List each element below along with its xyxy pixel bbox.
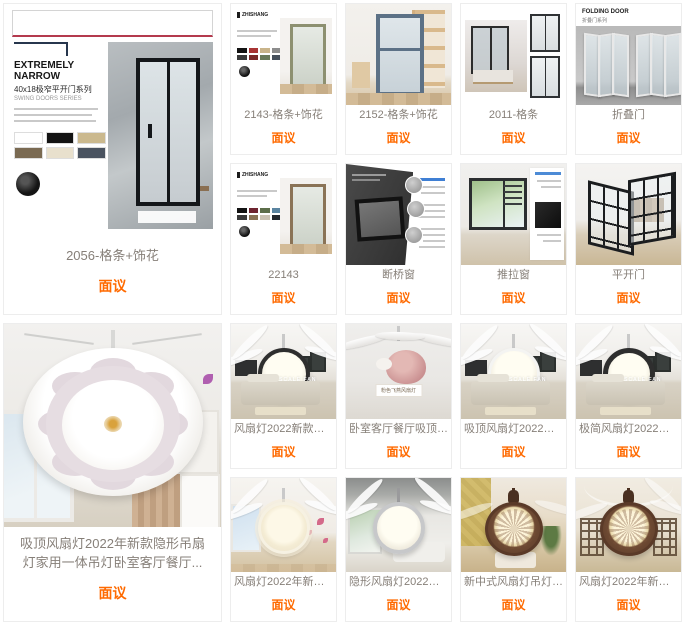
brand-logo: ZHISHANG — [237, 12, 268, 18]
product-image[interactable]: BEST UPSCALE FAN — [576, 324, 681, 419]
folding-panel — [664, 33, 681, 97]
product-card[interactable]: 新中式风扇灯吊灯客厅灯... 面议 — [460, 477, 567, 623]
poster-text-bar — [237, 35, 271, 37]
interior-photo — [465, 20, 527, 92]
product-title[interactable]: 2143-格条+饰花 — [234, 108, 333, 124]
product-card[interactable]: BEST UPSCALE FAN 风扇灯2022新款约家用吸... 面议 — [230, 323, 337, 469]
folding-panel — [612, 33, 629, 97]
swatch — [249, 55, 259, 60]
poster-text-bar — [541, 186, 561, 188]
fan-rod — [512, 334, 515, 349]
product-meta: 风扇灯2022新款约家用吸... 面议 — [231, 419, 336, 468]
fan-lamp-graphic — [346, 488, 451, 573]
product-card-featured-door[interactable]: EXTREMELY NARROW 40x18极窄平开门系列 SWING DOOR… — [3, 3, 222, 315]
product-card[interactable]: 隐形风扇灯2022新款简约... 面议 — [345, 477, 452, 623]
product-meta: 折叠门 面议 — [576, 105, 681, 154]
product-title[interactable]: 吸顶风扇灯2022年新款隐形吊扇灯家用一体吊灯卧室客厅餐厅... — [10, 535, 215, 573]
door-photo — [280, 178, 332, 254]
product-title[interactable]: 2011-格条 — [464, 108, 563, 124]
product-meta: 平开门 面议 — [576, 265, 681, 314]
product-card[interactable]: ZHISHANG 22143 面议 — [230, 163, 337, 315]
profile-sample-photo — [239, 66, 250, 77]
product-price: 面议 — [349, 129, 448, 146]
glass-door-graphic — [471, 26, 509, 74]
product-card[interactable]: 风扇灯2022年新款客厅卧... 面议 — [230, 477, 337, 623]
door-diagram — [530, 56, 560, 98]
fan-lamp-graphic — [18, 330, 208, 500]
product-price: 面议 — [579, 596, 678, 613]
swatch — [46, 147, 75, 159]
rug-graphic — [600, 407, 651, 415]
narrow-door-graphic — [136, 58, 200, 206]
color-swatches — [237, 48, 281, 60]
product-meta: 2152-格条+饰花 面议 — [346, 105, 451, 154]
swatch — [77, 132, 106, 144]
brand-logo: ZHISHANG — [237, 172, 268, 178]
product-image[interactable] — [461, 4, 566, 105]
product-card[interactable]: ZHISHANG 2143-格条+饰花 面议 — [230, 3, 337, 155]
product-price: 面议 — [234, 129, 333, 146]
door-graphic — [290, 24, 326, 88]
poster-text-bar — [237, 30, 277, 32]
product-title[interactable]: 2152-格条+饰花 — [349, 108, 448, 124]
poster-text-bar — [543, 240, 561, 242]
profile-sample-photo — [16, 172, 40, 196]
product-title[interactable]: 风扇灯2022新款约家用吸... — [234, 422, 333, 438]
sliding-window-graphic — [469, 178, 527, 230]
door-graphic — [290, 184, 326, 248]
fan-finial — [623, 490, 634, 503]
product-price: 面议 — [234, 596, 333, 613]
fans-section: 吸顶风扇灯2022年新款隐形吊扇灯家用一体吊灯卧室客厅餐厅... 面议 BEST… — [3, 323, 682, 622]
swatch — [260, 48, 270, 53]
swatch — [249, 208, 259, 213]
product-price: 面议 — [234, 289, 333, 306]
title-line-2: 灯家用一体吊灯卧室客厅餐厅... — [23, 555, 203, 570]
product-price: 面议 — [349, 596, 448, 613]
window-frame-graphic — [355, 196, 406, 241]
lamp-body-pink — [386, 350, 426, 384]
product-image[interactable] — [4, 324, 221, 527]
product-price: 面议 — [464, 443, 563, 460]
product-card[interactable]: BEST UPSCALE FAN 极简风扇灯2022年新款简... 面议 — [575, 323, 682, 469]
product-image[interactable] — [346, 4, 451, 105]
swatch — [14, 132, 43, 144]
product-title[interactable]: 断桥窗 — [349, 268, 448, 284]
product-image[interactable]: BEST UPSCALE FAN — [231, 324, 336, 419]
product-image[interactable]: BEST UPSCALE FAN — [461, 324, 566, 419]
product-image[interactable] — [576, 164, 681, 265]
glass-wall-right — [628, 172, 676, 246]
poster-header-band — [12, 10, 213, 37]
photo-caption-strip — [138, 211, 196, 223]
rug-graphic — [485, 407, 536, 415]
fan-rod — [627, 334, 630, 349]
product-image[interactable]: ZHISHANG — [231, 4, 336, 105]
floor-graphic — [280, 244, 332, 254]
product-meta: 极简风扇灯2022年新款简... 面议 — [576, 419, 681, 468]
swatch — [237, 48, 247, 53]
poster-subheading: 40x18极窄平开门系列 — [14, 84, 92, 95]
rug-graphic — [255, 407, 306, 415]
product-image[interactable]: 粉色飞燕风扇灯 — [346, 324, 451, 419]
lamp-center-medallion — [104, 416, 122, 432]
glass-partition-graphic — [588, 176, 672, 250]
product-meta: 风扇灯2022年新款吸顶吊... 面议 — [576, 572, 681, 621]
product-meta: 2143-格条+饰花 面议 — [231, 105, 336, 154]
color-swatches — [237, 208, 281, 220]
poster-text-bar — [419, 246, 445, 248]
product-image[interactable] — [461, 164, 566, 265]
poster-text-bar — [14, 114, 92, 116]
sofa-graphic — [586, 381, 665, 405]
swatch — [77, 147, 106, 159]
product-price: 面议 — [10, 276, 215, 296]
poster-text-bar — [237, 190, 277, 192]
product-meta: 推拉窗 面议 — [461, 265, 566, 314]
product-price: 面议 — [579, 289, 678, 306]
dining-table-graphic — [473, 70, 513, 84]
photo-caption: 粉色飞燕风扇灯 — [375, 384, 422, 397]
detail-photo-circle — [405, 176, 423, 194]
product-image[interactable]: FOLDING DOOR 折叠门系列 — [576, 4, 681, 105]
fan-rod — [397, 488, 400, 503]
product-price: 面议 — [234, 443, 333, 460]
floor-graphic — [346, 93, 451, 105]
side-table-graphic — [352, 62, 370, 88]
product-title[interactable]: 2056-格条+饰花 — [10, 247, 215, 266]
product-price: 面议 — [10, 583, 215, 603]
swatch — [237, 208, 247, 213]
product-meta: 风扇灯2022年新款客厅卧... 面议 — [231, 572, 336, 621]
profile-product-photo — [535, 202, 561, 228]
product-meta: 卧室客厅餐厅吸顶风扇灯.. 面议 — [346, 419, 451, 468]
swatch — [237, 55, 247, 60]
door-diagram — [530, 14, 560, 52]
product-title[interactable]: 风扇灯2022年新款客厅卧... — [234, 575, 333, 591]
poster-text-bar — [537, 180, 561, 182]
color-swatches — [14, 132, 106, 159]
title-line-1: 吸顶风扇灯2022年新款隐形吊扇 — [20, 536, 205, 551]
profile-sample-photo — [239, 226, 250, 237]
poster-text-bar — [421, 192, 445, 194]
product-title[interactable]: 新中式风扇灯吊灯客厅灯... — [464, 575, 563, 591]
fan-rod — [282, 488, 285, 503]
product-card[interactable]: 平开门 面议 — [575, 163, 682, 315]
product-title[interactable]: 平开门 — [579, 268, 678, 284]
fan-lamp-graphic — [461, 488, 566, 573]
product-card[interactable]: FOLDING DOOR 折叠门系列 折叠门 面议 — [575, 3, 682, 155]
sofa-graphic — [471, 381, 550, 405]
swatch — [249, 215, 259, 220]
product-meta: 隐形风扇灯2022新款简约... 面议 — [346, 572, 451, 621]
poster-series-label: SWING DOORS SERIES — [14, 96, 82, 102]
poster-corner-rule — [14, 42, 68, 56]
product-image[interactable] — [576, 478, 681, 573]
product-card[interactable]: 2011-格条 面议 — [460, 3, 567, 155]
folding-door-scene — [576, 26, 681, 105]
product-card[interactable]: 断桥窗 面议 — [345, 163, 452, 315]
product-title[interactable]: 卧室客厅餐厅吸顶风扇灯.. — [349, 422, 448, 438]
swatch — [46, 132, 75, 144]
sofa-graphic — [241, 381, 320, 405]
floor-graphic — [280, 84, 332, 94]
product-image[interactable] — [231, 478, 336, 573]
swatch — [260, 215, 270, 220]
product-image[interactable] — [346, 478, 451, 573]
poster-subheading: 折叠门系列 — [582, 17, 607, 24]
detail-photo-circle — [407, 200, 425, 218]
product-price: 面议 — [464, 129, 563, 146]
product-meta: 22143 面议 — [231, 265, 336, 314]
floor-graphic — [231, 564, 336, 572]
poster-text-bar — [14, 108, 98, 110]
product-card[interactable]: 风扇灯2022年新款吸顶吊... 面议 — [575, 477, 682, 623]
product-title[interactable]: 极简风扇灯2022年新款简... — [579, 422, 678, 438]
product-card[interactable]: 推拉窗 面议 — [460, 163, 567, 315]
product-title[interactable]: 推拉窗 — [464, 268, 563, 284]
product-image[interactable] — [461, 478, 566, 573]
swatch — [237, 215, 247, 220]
product-price: 面议 — [349, 443, 448, 460]
catalog-heading-bar — [535, 172, 561, 175]
product-image[interactable] — [346, 164, 451, 265]
poster-text-bar — [352, 174, 386, 176]
fan-lamp-graphic — [576, 488, 681, 573]
product-title[interactable]: 22143 — [234, 268, 333, 284]
poster-text-bar — [352, 179, 380, 181]
fan-finial — [508, 490, 519, 503]
fan-mount-arm — [132, 333, 202, 345]
product-meta: 断桥窗 面议 — [346, 265, 451, 314]
door-graphic — [376, 14, 424, 96]
lamp-body — [600, 502, 658, 556]
swatch — [249, 48, 259, 53]
poster-heading: EXTREMELY NARROW — [14, 60, 110, 82]
fan-lamp-graphic — [231, 488, 336, 573]
product-image[interactable]: EXTREMELY NARROW 40x18极窄平开门系列 SWING DOOR… — [4, 4, 221, 239]
poster-text-bar — [14, 120, 96, 122]
product-meta: 吸顶风扇灯2022年新款隐形吊扇灯家用一体吊灯卧室客厅餐厅... 面议 — [4, 527, 221, 621]
lamp-spotlight — [376, 358, 392, 370]
product-meta: 吸顶风扇灯2022年新款隐... 面议 — [461, 419, 566, 468]
lamp-body — [373, 502, 425, 554]
product-price: 面议 — [464, 596, 563, 613]
product-price: 面议 — [579, 443, 678, 460]
doors-section: EXTREMELY NARROW 40x18极窄平开门系列 SWING DOOR… — [3, 3, 682, 315]
product-card[interactable]: 2152-格条+饰花 面议 — [345, 3, 452, 155]
lamp-body — [258, 502, 310, 554]
fan-rod — [282, 334, 285, 349]
product-price: 面议 — [579, 129, 678, 146]
poster-text-bar — [421, 228, 445, 230]
product-title[interactable]: 吸顶风扇灯2022年新款隐... — [464, 422, 563, 438]
lamp-body — [485, 502, 543, 556]
product-card[interactable]: 粉色飞燕风扇灯 卧室客厅餐厅吸顶风扇灯.. 面议 — [345, 323, 452, 469]
brochure-dark-panel — [346, 164, 413, 265]
product-title[interactable]: 隐形风扇灯2022新款简约... — [349, 575, 448, 591]
product-price: 面议 — [349, 289, 448, 306]
product-meta: 2056-格条+饰花 面议 — [4, 239, 221, 314]
product-image[interactable]: ZHISHANG — [231, 164, 336, 265]
door-photo — [280, 18, 332, 94]
poster-text-bar — [237, 195, 267, 197]
product-title[interactable]: 风扇灯2022年新款吸顶吊... — [579, 575, 678, 591]
product-card-featured-fan[interactable]: 吸顶风扇灯2022年新款隐形吊扇灯家用一体吊灯卧室客厅餐厅... 面议 — [3, 323, 222, 622]
door-photo — [108, 42, 213, 229]
product-meta: 2011-格条 面议 — [461, 105, 566, 154]
product-meta: 新中式风扇灯吊灯客厅灯... 面议 — [461, 572, 566, 621]
poster-text-bar — [537, 234, 561, 236]
swatch — [14, 147, 43, 159]
poster-heading: FOLDING DOOR — [582, 9, 629, 15]
fan-mount-arm — [24, 333, 94, 345]
product-price: 面议 — [464, 289, 563, 306]
product-grid-page: EXTREMELY NARROW 40x18极窄平开门系列 SWING DOOR… — [0, 0, 689, 625]
detail-photo-circle — [405, 226, 423, 244]
swatch — [260, 208, 270, 213]
poster-text-bar — [423, 240, 445, 242]
swatch — [260, 55, 270, 60]
product-title[interactable]: 折叠门 — [579, 108, 678, 124]
product-card[interactable]: BEST UPSCALE FAN 吸顶风扇灯2022年新款隐... 面议 — [460, 323, 567, 469]
